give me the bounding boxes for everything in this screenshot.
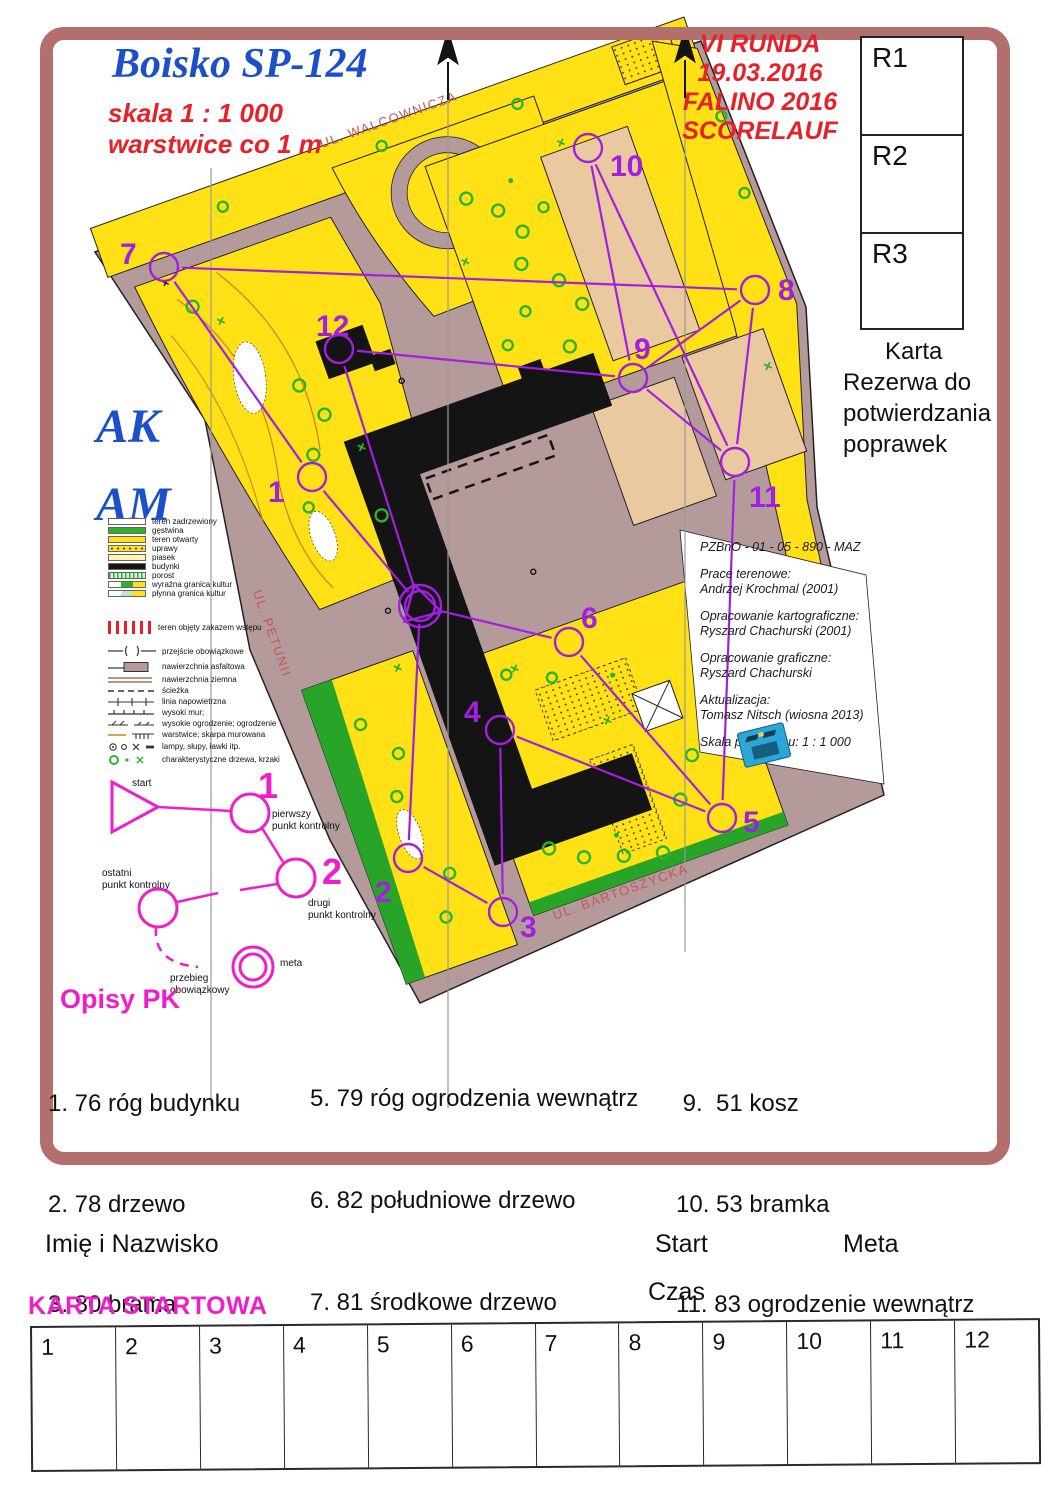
map-scale-note: skala 1 : 1 000 warstwice co 1 m xyxy=(108,98,322,160)
card-cell-4: 4 xyxy=(284,1325,369,1468)
svg-text:punkt kontrolny: punkt kontrolny xyxy=(308,910,376,921)
original-scale-line: Skala pierworysu: 1 : 1 000 xyxy=(700,735,925,750)
legend-row: przejście obowiązkowe xyxy=(108,643,280,659)
svg-text:przebieg: przebieg xyxy=(170,973,208,984)
credit-group: Aktualizacja: Tomasz Nitsch (wiosna 2013… xyxy=(700,693,925,723)
legend-row: wysokie ogrodzenie; ogrodzenie xyxy=(108,718,280,729)
swatch-gestwina-icon xyxy=(108,527,146,534)
event-name: FALINO 2016 xyxy=(655,88,865,117)
svg-text:punkt kontrolny: punkt kontrolny xyxy=(102,880,170,891)
control-description: 11. 83 ogrodzenie wewnątrz xyxy=(676,1288,974,1322)
card-cell-12: 12 xyxy=(955,1320,1039,1463)
card-cell-5: 5 xyxy=(368,1325,453,1468)
control-description: 5. 79 róg ogrodzenia wewnątrz xyxy=(310,1082,638,1116)
legend-row: porost xyxy=(108,571,232,580)
name-field-label: Imię i Nazwisko xyxy=(45,1230,219,1259)
start-card-heading: KARTA STARTOWA xyxy=(28,1292,267,1321)
scanned-map-page: UL. WALCOWNICZA UL. PETUNII UL. BARTOSZY… xyxy=(0,0,1050,1500)
finish-time-label: Meta xyxy=(843,1230,899,1259)
legend-forbidden-row: teren objęty zakazem wstępu xyxy=(108,620,262,634)
legend-row: linia napowietrzna xyxy=(108,696,280,707)
last-control-circle-icon xyxy=(139,889,177,927)
class-label-ak: AK xyxy=(96,388,171,466)
reserve-box-r3: R3 xyxy=(860,232,964,330)
legend-row: gęstwina xyxy=(108,526,232,535)
legend-row: piasek xyxy=(108,553,232,562)
swatch-uprawy-icon xyxy=(108,545,146,552)
control-description: 10. 53 bramka xyxy=(676,1188,974,1222)
time-row-label: Czas xyxy=(648,1278,705,1307)
event-format: SCORELAUF xyxy=(655,117,865,146)
credit-group: Opracowanie graficzne: Ryszard Chachursk… xyxy=(700,651,925,681)
legend-row: nawierzchnia asfaltowa xyxy=(108,659,280,674)
card-cell-3: 3 xyxy=(200,1326,285,1469)
marked-route-dashed xyxy=(156,927,198,967)
legend-row: płynna granica kultur xyxy=(108,589,232,598)
swatch-wyrazna-granica-icon xyxy=(108,581,146,588)
legend-line-symbols: przejście obowiązkowe nawierzchnia asfal… xyxy=(108,643,280,766)
finish-inner-circle-icon xyxy=(240,954,266,980)
swatch-lampy-icon xyxy=(108,741,156,753)
reserve-boxes: R1 R2 R3 xyxy=(860,36,964,330)
card-cell-9: 9 xyxy=(703,1322,788,1465)
card-cell-11: 11 xyxy=(871,1321,956,1464)
swatch-porost-icon xyxy=(108,572,146,579)
contour-interval-line: warstwice co 1 m xyxy=(108,129,322,160)
svg-text:punkt kontrolny: punkt kontrolny xyxy=(272,821,340,832)
legend-row: wyraźna granica kultur xyxy=(108,580,232,589)
card-cell-1: 1 xyxy=(32,1327,117,1470)
card-cell-8: 8 xyxy=(619,1323,704,1466)
control-description: 1. 76 róg budynku xyxy=(48,1087,240,1121)
legend-row: teren otwarty xyxy=(108,535,232,544)
legend-row: teren zadrzewiony xyxy=(108,517,232,526)
swatch-piasek-icon xyxy=(108,554,146,561)
start-label: start xyxy=(132,778,152,789)
second-control-circle-icon xyxy=(277,859,315,897)
event-round: VI RUNDA xyxy=(655,30,865,59)
control-description: 9. 51 kosz xyxy=(676,1087,974,1121)
finish-label: meta xyxy=(280,958,303,969)
map-credits: PZBnO - 01 - 05 - 890 - MAZ Prace tereno… xyxy=(700,540,925,750)
swatch-plynna-granica-icon xyxy=(108,590,146,597)
diagram-number-1: 1 xyxy=(258,765,278,806)
course-legend-diagram: 1 2 start pierwszy punkt kontrolny drugi… xyxy=(90,760,400,1005)
card-cell-2: 2 xyxy=(116,1327,201,1470)
scale-line: skala 1 : 1 000 xyxy=(108,98,322,129)
credit-group: Opracowanie kartograficzne: Ryszard Chac… xyxy=(700,609,925,639)
event-date: 19.03.2016 xyxy=(655,59,865,88)
start-card-table: 123456789101112 xyxy=(30,1318,1041,1472)
credit-group: Prace terenowe: Andrzej Krochmal (2001) xyxy=(700,567,925,597)
legend-area-symbols: teren zadrzewiony gęstwina teren otwarty… xyxy=(108,517,232,598)
reserve-box-r2: R2 xyxy=(860,134,964,232)
legend-row: budynki xyxy=(108,562,232,571)
swatch-warstwice-icon xyxy=(108,729,156,741)
swatch-budynki-icon xyxy=(108,563,146,570)
control-description: 2. 78 drzewo xyxy=(48,1188,240,1222)
event-header: VI RUNDA 19.03.2016 FALINO 2016 SCORELAU… xyxy=(655,30,865,146)
svg-text:drugi: drugi xyxy=(308,898,330,909)
legend-row: wysoki mur; xyxy=(108,707,280,718)
map-title: Boisko SP-124 xyxy=(112,40,368,88)
legend-row: lampy, słupy, ławki itp. xyxy=(108,740,280,753)
control-descriptions-heading: Opisy PK xyxy=(60,984,180,1015)
control-description: 6. 82 południowe drzewo xyxy=(310,1184,638,1218)
legend-row: uprawy xyxy=(108,544,232,553)
legend-row: nawierzchnia ziemna xyxy=(108,674,280,685)
legend-row: ścieżka xyxy=(108,685,280,696)
swatch-zakaz-wstepu-icon xyxy=(108,621,152,634)
svg-text:pierwszy: pierwszy xyxy=(272,809,311,820)
swatch-teren-otwarty-icon xyxy=(108,536,146,543)
swatch-asfalt-icon xyxy=(108,661,156,673)
reserve-note: Karta Rezerwa do potwierdzania poprawek xyxy=(843,336,1018,460)
legend-row: warstwice; skarpa murowana xyxy=(108,729,280,740)
control-description: 7. 81 środkowe drzewo xyxy=(310,1286,638,1320)
card-cell-6: 6 xyxy=(452,1324,537,1467)
swatch-teren-zadrzewiony-icon xyxy=(108,518,146,525)
registry-number: PZBnO - 01 - 05 - 890 - MAZ xyxy=(700,540,925,555)
reserve-box-r1: R1 xyxy=(860,36,964,134)
swatch-przejscie-icon xyxy=(108,645,156,657)
start-time-label: Start xyxy=(655,1230,708,1259)
card-cell-10: 10 xyxy=(787,1321,872,1464)
start-triangle-icon xyxy=(112,782,158,832)
card-cell-7: 7 xyxy=(536,1323,621,1466)
svg-text:ostatni: ostatni xyxy=(102,868,131,879)
diagram-number-2: 2 xyxy=(322,851,342,892)
